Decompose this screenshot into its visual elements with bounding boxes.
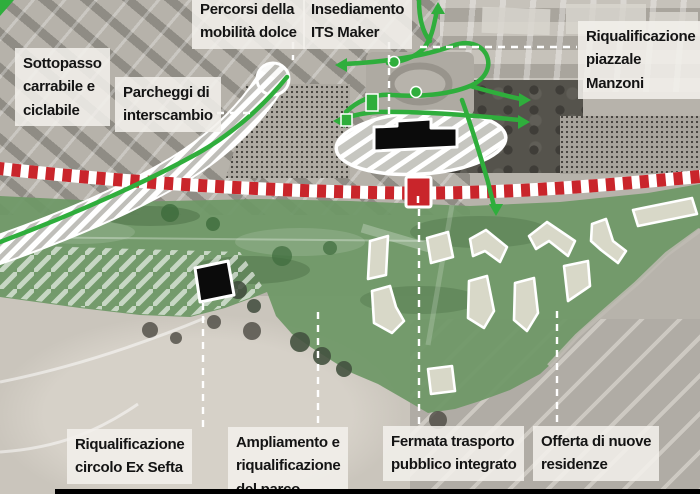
label-parcheggi-interscambio: Parcheggi di interscambio bbox=[115, 77, 221, 132]
label-percorsi-mobilita-dolce: Percorsi della mobilità dolce bbox=[192, 0, 305, 49]
label-insediamento-its-maker: Insediamento ITS Maker bbox=[303, 0, 412, 49]
label-riqualificazione-manzoni: Riqualificazione piazzale Manzoni bbox=[578, 21, 700, 99]
label-offerta-residenze: Offerta di nuove residenze bbox=[533, 426, 659, 481]
station-stop-marker bbox=[406, 177, 431, 207]
ex-sefta-building bbox=[195, 261, 234, 302]
label-sottopasso: Sottopasso carrabile e ciclabile bbox=[15, 48, 110, 126]
label-ampliamento-parco: Ampliamento e riqualificazione del parco bbox=[228, 427, 348, 494]
parking-grid-east bbox=[560, 116, 700, 174]
label-fermata-trasporto: Fermata trasporto pubblico integrato bbox=[383, 426, 524, 481]
label-riqualificazione-ex-sefta: Riqualificazione circolo Ex Sefta bbox=[67, 429, 192, 484]
urban-plan-infographic: Percorsi della mobilità dolce Insediamen… bbox=[0, 0, 700, 494]
bottom-border-bar bbox=[55, 489, 700, 494]
